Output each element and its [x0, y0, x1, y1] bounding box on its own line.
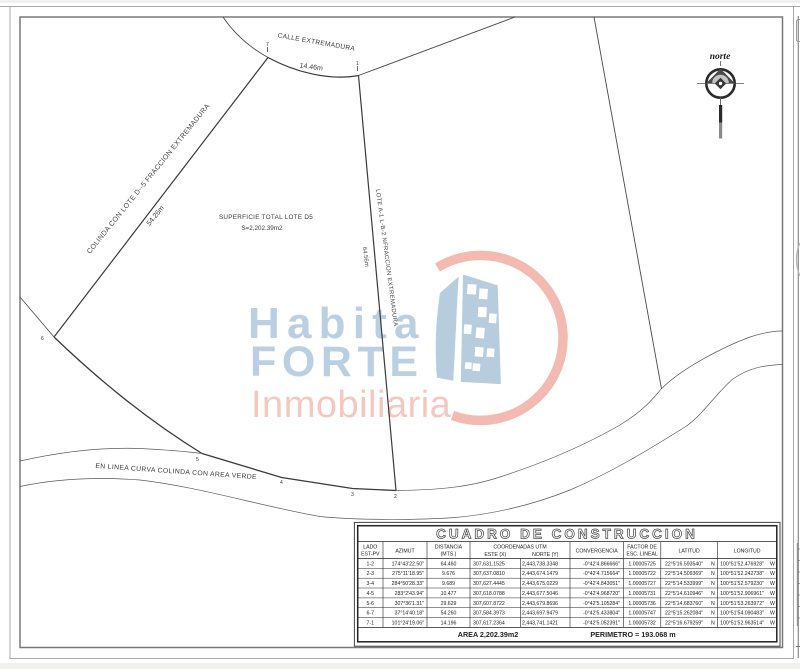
svg-text:5: 5 [196, 457, 199, 463]
svg-text:COORDENADAS UTM: COORDENADAS UTM [493, 545, 546, 551]
svg-text:174°43'22.50": 174°43'22.50" [392, 561, 424, 567]
svg-text:29.629: 29.629 [441, 601, 457, 607]
svg-text:SUPERFICIE TOTAL LOTE D5: SUPERFICIE TOTAL LOTE D5 [219, 214, 313, 221]
svg-text:-0°42'4.968720": -0°42'4.968720" [583, 591, 620, 597]
svg-text:FACTOR DE: FACTOR DE [627, 545, 657, 551]
svg-text:100°51'53.263972": 100°51'53.263972" [720, 601, 764, 607]
svg-text:2,443,675.0229: 2,443,675.0229 [522, 581, 558, 587]
svg-text:W: W [770, 621, 775, 627]
svg-text:-0°42'4.866666": -0°42'4.866666" [583, 561, 620, 567]
svg-text:2,443,674.1479: 2,443,674.1479 [522, 571, 558, 577]
svg-text:100°51'54.090483": 100°51'54.090483" [720, 611, 764, 617]
svg-text:S=2,202.39m2: S=2,202.39m2 [241, 225, 283, 232]
svg-text:W: W [770, 571, 775, 577]
svg-text:1.00005732: 1.00005732 [628, 621, 656, 627]
svg-text:100°51'52.963514": 100°51'52.963514" [720, 621, 764, 627]
svg-text:2,443,697.9479: 2,443,697.9479 [522, 611, 558, 617]
svg-text:37°14'40.18": 37°14'40.18" [395, 611, 425, 617]
svg-text:Inmobiliaria: Inmobiliaria [251, 384, 452, 426]
svg-text:1.00005722: 1.00005722 [628, 571, 656, 577]
svg-text:7: 7 [266, 42, 269, 48]
svg-text:CUADRO DE CONSTRUCCION: CUADRO DE CONSTRUCCION [436, 527, 698, 542]
svg-text:3-4: 3-4 [367, 581, 375, 587]
svg-text:307,617.2364: 307,617.2364 [473, 621, 505, 627]
svg-text:2,443,741.1421: 2,443,741.1421 [522, 621, 558, 627]
svg-text:22°5'16.593540": 22°5'16.593540" [665, 561, 703, 567]
svg-text:22°5'14.533999": 22°5'14.533999" [665, 581, 703, 587]
svg-text:AREA 2,202.39m2: AREA 2,202.39m2 [458, 630, 518, 639]
svg-text:W: W [770, 611, 775, 617]
svg-text:54.260: 54.260 [441, 611, 457, 617]
svg-text:9.676: 9.676 [442, 571, 455, 577]
svg-text:100°51'52.242738": 100°51'52.242738" [720, 571, 764, 577]
svg-text:FORTE: FORTE [250, 338, 424, 386]
svg-text:2-3: 2-3 [367, 571, 375, 577]
svg-text:307,618.0788: 307,618.0788 [473, 591, 505, 597]
svg-text:2,443,679.8696: 2,443,679.8696 [522, 601, 558, 607]
svg-text:10.477: 10.477 [441, 591, 457, 597]
svg-text:norte: norte [710, 52, 731, 62]
svg-text:283°2'43.94": 283°2'43.94" [395, 591, 425, 597]
svg-text:1.00005736: 1.00005736 [628, 601, 656, 607]
svg-text:307,607.8722: 307,607.8722 [473, 601, 505, 607]
svg-text:100°51'52.906961": 100°51'52.906961" [720, 591, 764, 597]
svg-text:LADO: LADO [363, 545, 377, 551]
svg-text:-0°42'5.105284": -0°42'5.105284" [583, 601, 620, 607]
svg-text:22°5'15.262084": 22°5'15.262084" [665, 611, 703, 617]
svg-text:1.00005731: 1.00005731 [628, 591, 656, 597]
svg-text:1.00005727: 1.00005727 [628, 581, 656, 587]
svg-text:PERIMETRO = 193.068 m: PERIMETRO = 193.068 m [590, 630, 675, 639]
svg-text:22°5'14.610946": 22°5'14.610946" [665, 591, 703, 597]
svg-text:ESC. LINEAL: ESC. LINEAL [626, 552, 658, 558]
svg-text:307,584.3973: 307,584.3973 [473, 611, 505, 617]
svg-text:4-5: 4-5 [367, 591, 375, 597]
svg-text:NORTE (Y): NORTE (Y) [532, 552, 559, 558]
svg-text:N: N [711, 581, 715, 587]
svg-text:64.460: 64.460 [441, 561, 457, 567]
svg-text:LONGITUD: LONGITUD [734, 549, 761, 555]
svg-text:100°51'52.579230": 100°51'52.579230" [720, 581, 764, 587]
svg-text:DISTANCIA: DISTANCIA [435, 545, 463, 551]
svg-text:3: 3 [351, 492, 354, 498]
svg-text:6-7: 6-7 [367, 611, 375, 617]
svg-text:22°5'16.679259": 22°5'16.679259" [665, 621, 703, 627]
svg-text:ESTE (X): ESTE (X) [484, 552, 506, 558]
svg-text:307,627.4445: 307,627.4445 [473, 581, 505, 587]
svg-text:W: W [770, 581, 775, 587]
svg-text:N: N [711, 571, 715, 577]
svg-text:307,631.1525: 307,631.1525 [473, 561, 505, 567]
svg-text:-0°42'4.715664": -0°42'4.715664" [583, 571, 620, 577]
svg-text:AZIMUT: AZIMUT [395, 549, 415, 555]
svg-text:1.00005747: 1.00005747 [628, 611, 656, 617]
svg-text:6: 6 [41, 336, 44, 342]
svg-text:(MTS.): (MTS.) [441, 552, 457, 558]
svg-text:100°51'52.476928": 100°51'52.476928" [720, 561, 764, 567]
svg-text:101°24'19.06": 101°24'19.06" [392, 621, 424, 627]
svg-text:2,443,677.5046: 2,443,677.5046 [522, 591, 558, 597]
svg-text:1-2: 1-2 [367, 561, 375, 567]
svg-text:EST-PV: EST-PV [361, 552, 380, 558]
svg-text:14.196: 14.196 [441, 621, 457, 627]
svg-text:1: 1 [356, 61, 359, 67]
svg-text:4: 4 [280, 480, 283, 486]
svg-text:5-6: 5-6 [367, 601, 375, 607]
svg-text:N: N [711, 561, 715, 567]
svg-text:N: N [711, 611, 715, 617]
svg-text:N: N [711, 591, 715, 597]
svg-text:307°36'1.31": 307°36'1.31" [395, 601, 425, 607]
svg-text:9.689: 9.689 [442, 581, 455, 587]
svg-text:7-1: 7-1 [367, 621, 375, 627]
svg-text:-0°42'4.843051": -0°42'4.843051" [583, 581, 620, 587]
svg-text:-0°42'5.433804": -0°42'5.433804" [583, 611, 620, 617]
svg-text:CONVERGENCIA: CONVERGENCIA [576, 549, 619, 555]
svg-text:2,443,738.3348: 2,443,738.3348 [522, 561, 558, 567]
svg-text:1.00005725: 1.00005725 [628, 561, 656, 567]
svg-text:284°50'28.33": 284°50'28.33" [392, 581, 424, 587]
svg-text:W: W [770, 591, 775, 597]
svg-text:W: W [770, 601, 775, 607]
svg-text:275°11'18.95": 275°11'18.95" [392, 571, 424, 577]
svg-text:N: N [711, 601, 715, 607]
svg-text:2: 2 [394, 494, 397, 500]
svg-text:-0°42'5.052391": -0°42'5.052391" [583, 621, 620, 627]
svg-text:N: N [711, 621, 715, 627]
svg-text:307,637.0810: 307,637.0810 [473, 571, 505, 577]
svg-text:22°5'14.683760": 22°5'14.683760" [665, 601, 703, 607]
svg-text:W: W [770, 561, 775, 567]
svg-text:LATITUD: LATITUD [678, 549, 699, 555]
svg-text:22°5'14.509369": 22°5'14.509369" [665, 571, 703, 577]
